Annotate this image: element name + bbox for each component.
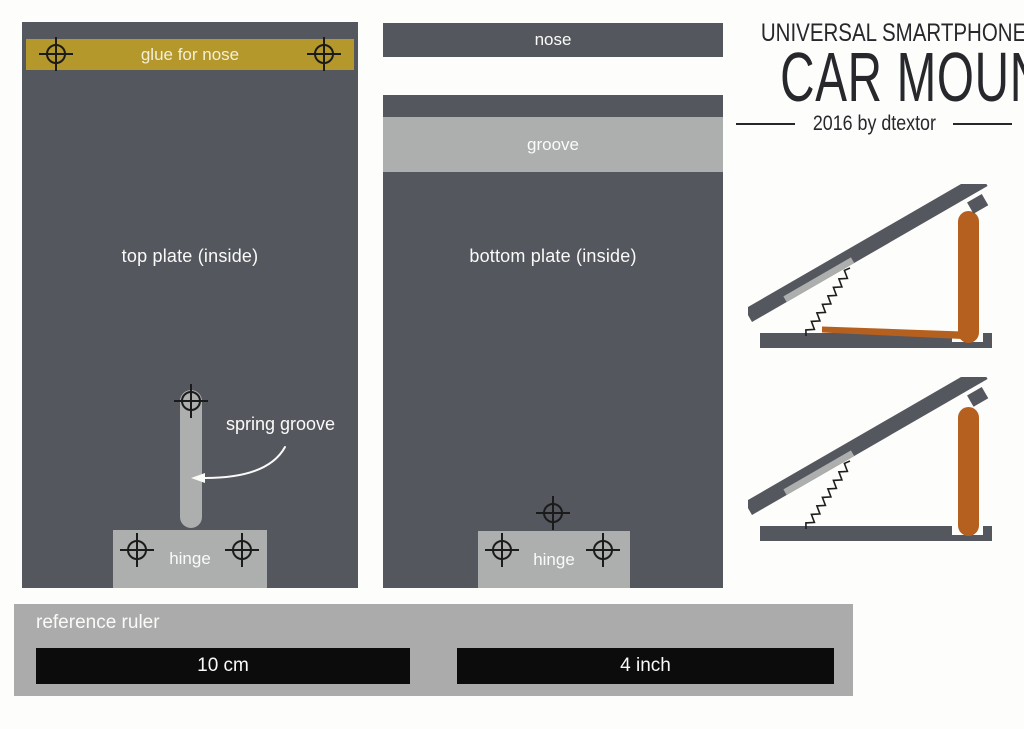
registration-mark-icon [119,532,155,568]
hinge-label: hinge [533,550,575,570]
hinge-label: hinge [169,549,211,569]
bottom-plate-label: bottom plate (inside) [383,245,723,267]
curved-arrow-icon [184,442,316,508]
top-plate-panel: glue for nose top plate (inside) spring … [22,22,358,588]
groove-band: groove [383,117,723,172]
top-plate-label: top plate (inside) [22,245,358,267]
ruler-10cm-bar: 10 cm [36,648,410,684]
ruler-4inch-bar: 4 inch [457,648,834,684]
car-mount-template-sheet: glue for nose top plate (inside) spring … [0,0,1024,729]
reference-ruler: reference ruler 10 cm 4 inch [14,604,853,696]
registration-mark-icon [585,532,621,568]
glue-for-nose-strip: glue for nose [26,39,354,70]
reference-ruler-label: reference ruler [36,612,160,634]
spring-groove-label: spring groove [226,414,335,435]
registration-mark-icon [535,495,571,531]
byline-rule-left [736,123,795,125]
ruler-10cm-label: 10 cm [197,655,249,677]
registration-mark-icon [224,532,260,568]
byline-rule-right [953,123,1012,125]
registration-mark-icon [38,36,74,72]
byline-text: 2016 by dtextor [812,112,935,136]
title-block: UNIVERSAL SMARTPHONE CAR MOUNT 2016 by d… [736,20,1012,136]
side-view-diagram-spring [748,377,1018,543]
title-line2: CAR MOUNT [780,46,968,108]
registration-mark-icon [484,532,520,568]
registration-mark-icon [306,36,342,72]
registration-mark-icon [173,383,209,419]
bottom-plate-panel: groove bottom plate (inside) hinge [383,95,723,588]
side-view-diagram-open [748,184,1018,350]
ruler-4inch-label: 4 inch [620,655,671,677]
nose-part: nose [383,23,723,57]
